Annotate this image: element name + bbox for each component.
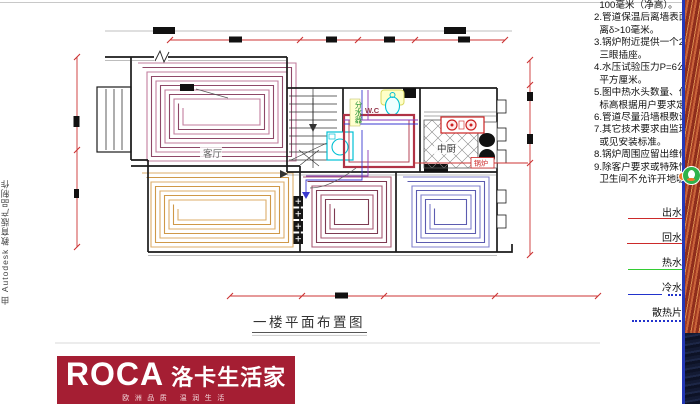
column-marker (153, 27, 175, 34)
heating-coil-right-supply (403, 177, 489, 247)
roca-brand-text: ROCA (66, 359, 164, 389)
note-line-13: 9.除客户要求或特殊情 (594, 162, 684, 174)
heating-coil-middle-return (308, 182, 387, 243)
autodesk-watermark: 由 Autodesk 教育版产品制作 (0, 95, 12, 305)
note-line-3: 3.锅炉附近提供一个2 (594, 37, 684, 49)
note-line-2: 离δ>10毫米。 (594, 25, 684, 37)
roca-logo-banner: ROCA 洛卡生活家 欧洲品质 温润生活 (57, 356, 295, 404)
note-line-8: 标高根据用户要求定 (594, 100, 684, 112)
roca-tagline: 欧洲品质 温润生活 (57, 393, 295, 403)
screenshot-root: 客厅 中厨 W.C 锅炉 分水器 一楼平面布置图 由 Autodesk 教育版产… (0, 0, 700, 404)
note-line-11: 或见安装标准。 (594, 137, 684, 149)
note-line-10: 7.其它技术要求由监理 (594, 124, 684, 136)
note-line-7: 5.图中热水头数量、位 (594, 87, 684, 99)
roof-line (105, 27, 512, 34)
chat-badge-glyph-foot (687, 178, 695, 182)
heating-coil-right-return (408, 182, 485, 243)
note-line-14: 卫生间不允许开地暖 (594, 174, 684, 186)
column-marker (444, 27, 466, 34)
legend-label-4: 散热片 (616, 304, 682, 319)
heating-coil-living-supply (138, 63, 296, 161)
legend-line-3 (628, 294, 662, 295)
kitchen-sink (479, 133, 495, 147)
installation-notes: 100毫米（净高）。2.管道保温后离墙表面 离δ>10毫米。3.锅炉附近提供一个… (594, 0, 684, 187)
chat-badge-icon[interactable] (682, 166, 700, 185)
heating-coil-dining-return (147, 178, 289, 243)
wc-room (327, 90, 414, 167)
note-line-12: 8.锅炉周围应留出维修 (594, 149, 684, 161)
kitchen-label: 中厨 (437, 143, 457, 155)
note-line-0: 100毫米（净高）。 (594, 0, 684, 12)
manifold-segments (294, 196, 304, 244)
manifold-label: 分水器 (354, 101, 363, 125)
right-edge-banner-bottom (685, 333, 700, 404)
legend-label-1: 回水 (616, 229, 682, 244)
note-line-9: 6.管道尽量沿墙根敷设 (594, 112, 684, 124)
drawing-title: 一楼平面布置图 (253, 315, 365, 330)
gas-stove (441, 117, 484, 133)
roca-brand-chinese: 洛卡生活家 (171, 363, 286, 393)
note-line-1: 2.管道保温后离墙表面 (594, 12, 684, 24)
note-line-4: 三眼插座。 (594, 50, 684, 62)
legend-label-2: 热水 (616, 254, 682, 269)
right-wall-windows (497, 100, 506, 228)
boiler-label: 锅炉 (474, 159, 488, 168)
wc-label: W.C (365, 106, 380, 115)
note-line-6: 平方厘米。 (594, 75, 684, 87)
living-room-label: 客厅 (203, 148, 223, 160)
legend-label-3: 冷水 (616, 279, 682, 294)
note-line-5: 4.水压试验压力P=6公 (594, 62, 684, 74)
